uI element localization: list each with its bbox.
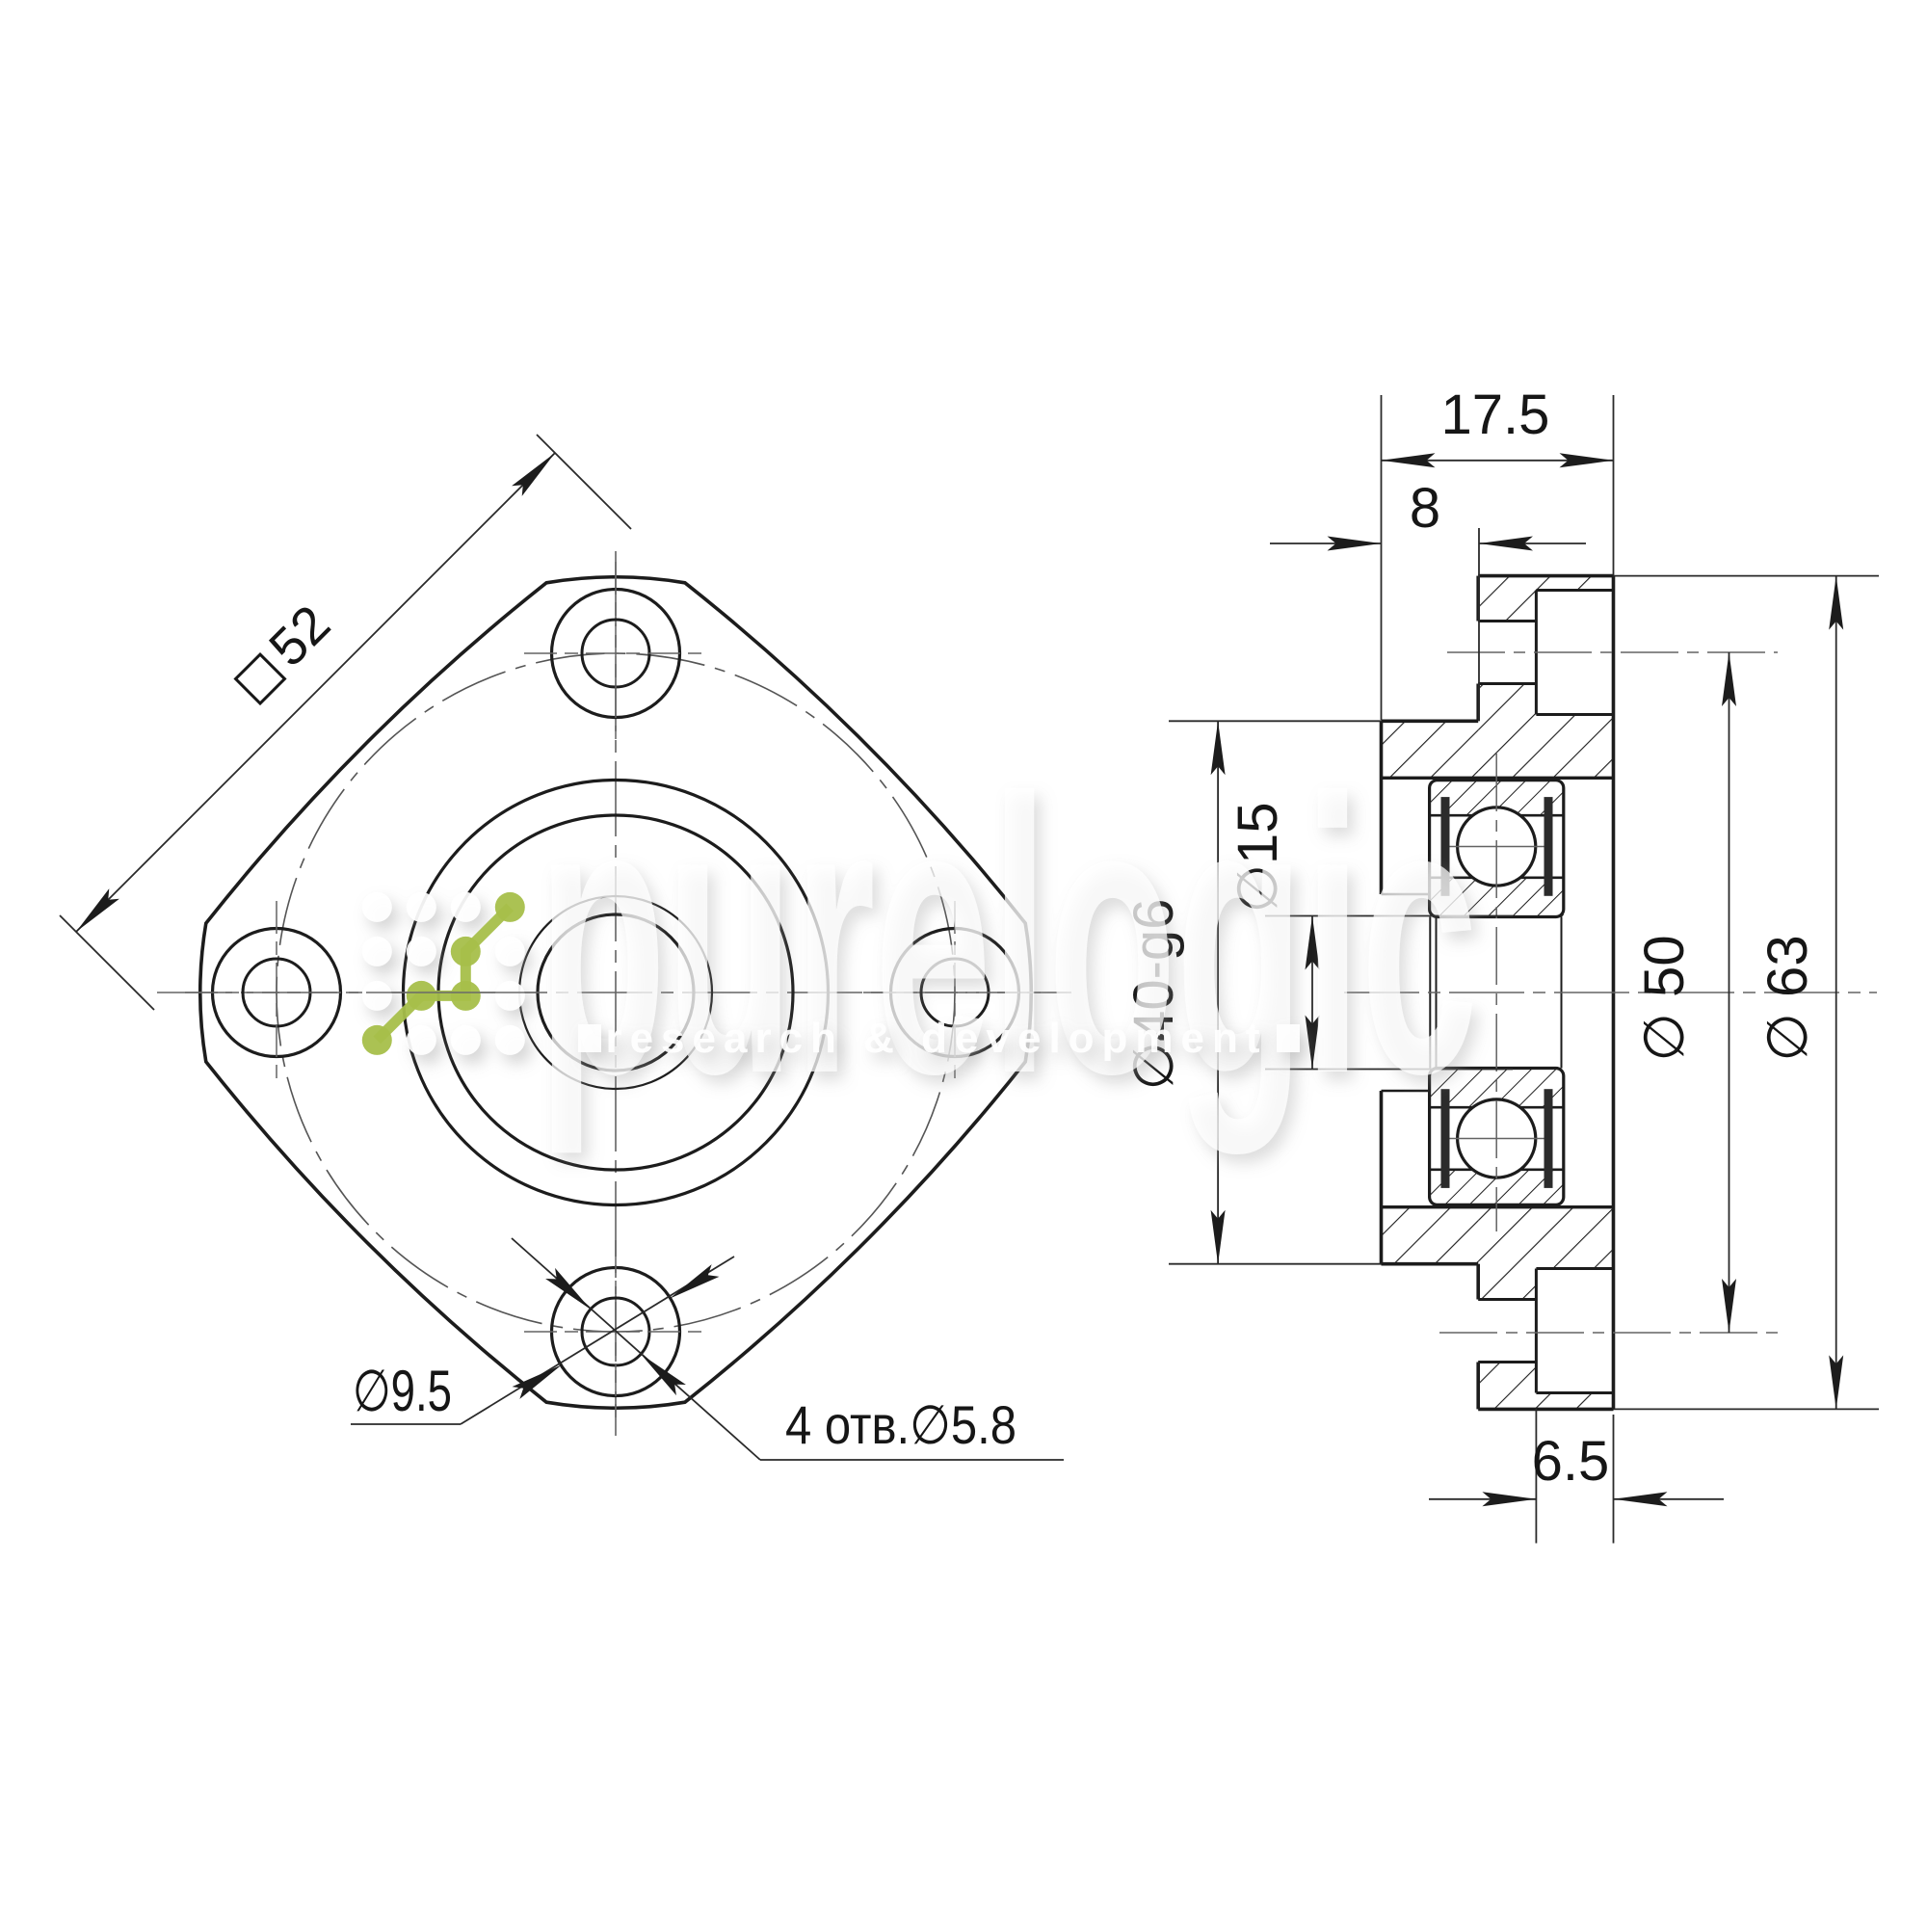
svg-text:∅9.5: ∅9.5: [353, 1359, 452, 1423]
svg-text:∅ 63: ∅ 63: [1756, 935, 1819, 1061]
svg-text:purelogic: purelogic: [538, 718, 1477, 1157]
svg-text:17.5: 17.5: [1441, 384, 1550, 446]
svg-text:research & development: research & development: [605, 1015, 1267, 1062]
svg-text:8: 8: [1410, 477, 1440, 540]
svg-text:6.5: 6.5: [1532, 1430, 1610, 1493]
svg-text:∅ 50: ∅ 50: [1633, 935, 1696, 1061]
svg-text:4 отв.∅5.8: 4 отв.∅5.8: [785, 1394, 1016, 1455]
